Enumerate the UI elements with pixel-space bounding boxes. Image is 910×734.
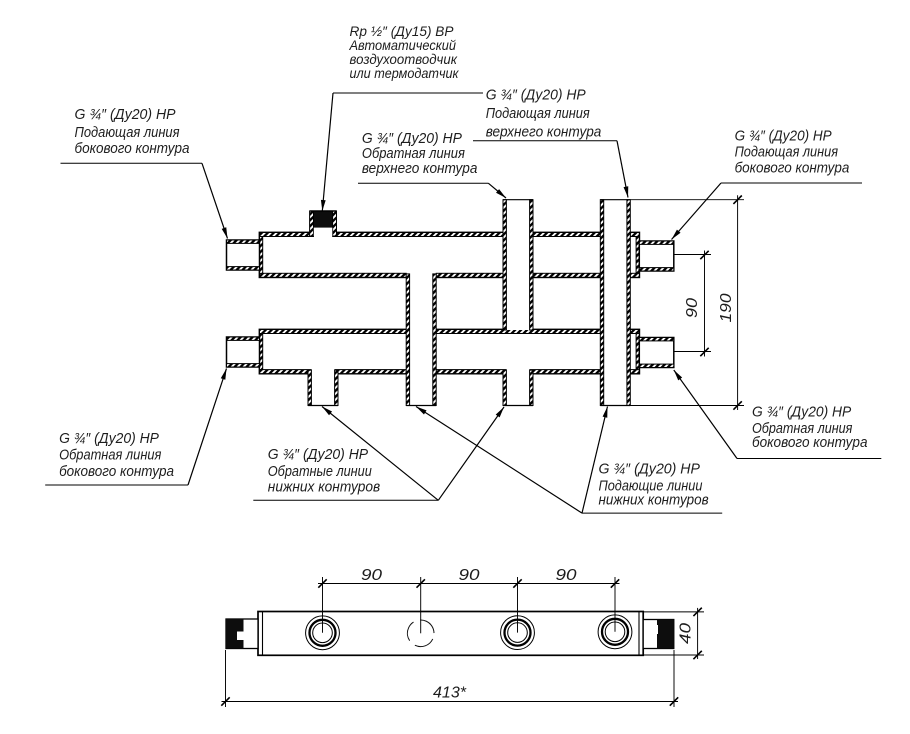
svg-text:нижних контуров: нижних контуров [599,492,709,509]
svg-text:413*: 413* [433,685,467,702]
svg-text:нижних контуров: нижних контуров [268,479,381,496]
svg-text:G ¾″ (Ду20) НР: G ¾″ (Ду20) НР [735,128,832,145]
svg-text:бокового контура: бокового контура [752,434,868,451]
svg-text:верхнего контура: верхнего контура [362,160,478,177]
svg-text:бокового контура: бокового контура [75,140,190,157]
svg-text:бокового контура: бокового контура [59,463,174,480]
svg-text:G ¾″ (Ду20) НР: G ¾″ (Ду20) НР [599,461,700,478]
svg-text:G ¾″ (Ду20) НР: G ¾″ (Ду20) НР [75,106,176,123]
svg-text:G ¾″ (Ду20) НР: G ¾″ (Ду20) НР [486,87,586,104]
svg-text:G ¾″ (Ду20) НР: G ¾″ (Ду20) НР [268,446,368,463]
svg-text:Подающая линия: Подающая линия [735,144,838,161]
svg-text:G ¾″ (Ду20) НР: G ¾″ (Ду20) НР [59,430,159,447]
svg-text:G ¾″ (Ду20) НР: G ¾″ (Ду20) НР [752,404,851,421]
svg-text:Обратные линии: Обратные линии [268,463,373,480]
svg-text:Обратная линия: Обратная линия [59,447,161,464]
svg-text:40: 40 [678,623,695,644]
svg-text:190: 190 [718,293,735,322]
svg-text:верхнего контура: верхнего контура [486,124,602,141]
svg-text:90: 90 [684,298,701,318]
svg-text:Подающая линия: Подающая линия [486,105,590,122]
svg-text:или термодатчик: или термодатчик [350,65,460,81]
svg-text:90: 90 [459,567,480,584]
svg-text:Подающая линия: Подающая линия [75,124,180,141]
svg-text:бокового контура: бокового контура [735,160,850,177]
svg-text:90: 90 [361,567,382,584]
svg-text:90: 90 [556,567,577,584]
